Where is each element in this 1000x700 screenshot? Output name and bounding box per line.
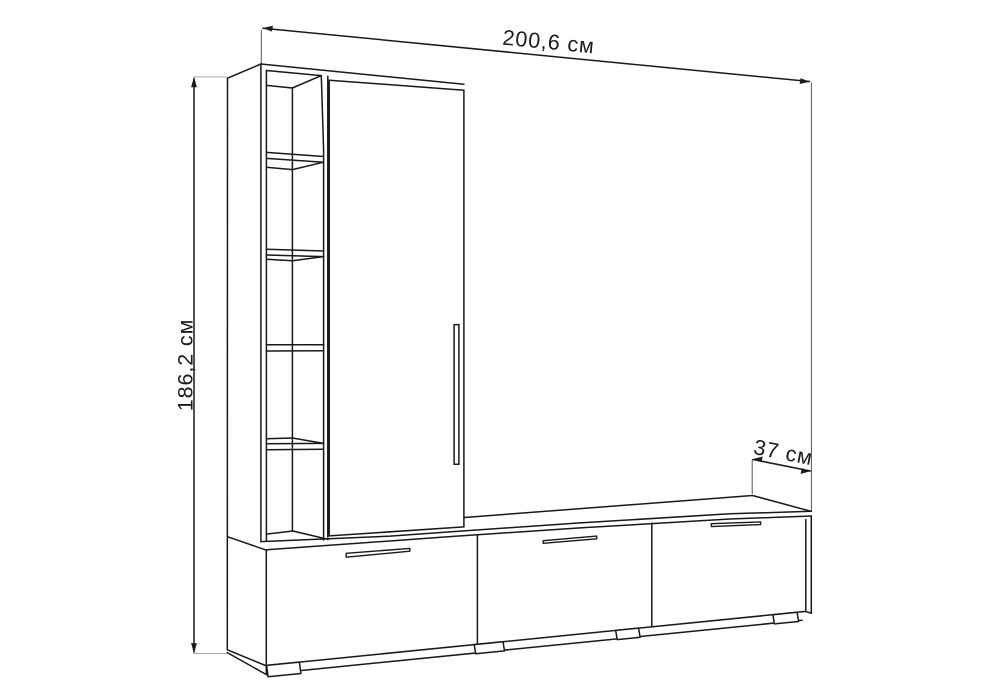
svg-text:186,2 см: 186,2 см: [173, 319, 197, 412]
